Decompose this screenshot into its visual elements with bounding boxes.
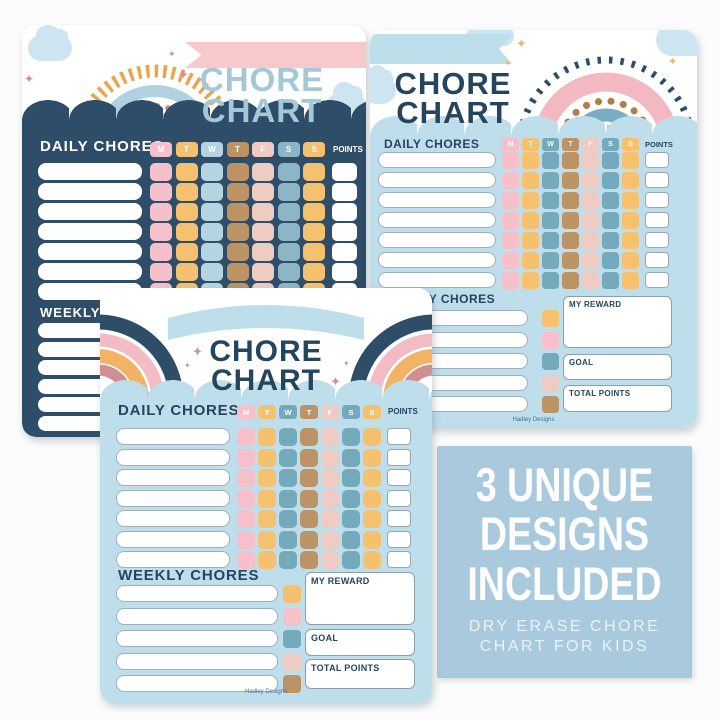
day-cell[interactable] xyxy=(237,428,255,446)
day-cell[interactable] xyxy=(176,263,198,281)
day-header: T xyxy=(227,142,249,157)
day-cell[interactable] xyxy=(303,163,325,181)
table-row xyxy=(116,608,301,626)
points-cell[interactable] xyxy=(645,252,669,268)
sparkle-icon: ✦ xyxy=(168,51,176,60)
day-cell[interactable] xyxy=(278,183,300,201)
day-cell[interactable] xyxy=(278,163,300,181)
table-row xyxy=(378,212,669,229)
day-cell[interactable] xyxy=(278,203,300,221)
total-points-box[interactable]: TOTAL POINTS xyxy=(305,659,415,689)
chore-name-field[interactable] xyxy=(116,531,230,548)
promo-headline-line1: 3 UNIQUE xyxy=(463,460,667,509)
chart-title: CHORE CHART xyxy=(372,70,534,127)
day-cell[interactable] xyxy=(622,212,639,229)
points-label: POINTS xyxy=(388,407,418,416)
day-cell[interactable] xyxy=(522,252,539,269)
product-image: ✦ ✦ ✦ CHORE CHART DAILY CHORES MTWTFSS P… xyxy=(0,0,720,720)
day-cell[interactable] xyxy=(502,192,519,209)
table-row xyxy=(378,252,669,269)
chore-name-field[interactable] xyxy=(116,630,278,647)
day-cell[interactable] xyxy=(176,183,198,201)
day-cell[interactable] xyxy=(502,212,519,229)
day-cell[interactable] xyxy=(582,252,599,269)
my-reward-box[interactable]: MY REWARD xyxy=(563,296,672,348)
day-cell[interactable] xyxy=(562,192,579,209)
chore-name-field[interactable] xyxy=(38,183,142,200)
points-cell[interactable] xyxy=(645,152,669,168)
day-cell[interactable] xyxy=(252,163,274,181)
day-cell[interactable] xyxy=(303,263,325,281)
day-cell[interactable] xyxy=(363,490,381,508)
chart-title-line2: CHART xyxy=(172,96,352,127)
day-cell[interactable] xyxy=(201,163,223,181)
day-cell[interactable] xyxy=(562,272,579,289)
day-header: S xyxy=(278,142,300,157)
points-cell[interactable] xyxy=(387,449,411,466)
day-header: F xyxy=(321,405,339,419)
week-color-square xyxy=(542,375,559,392)
day-cell[interactable] xyxy=(278,263,300,281)
day-cell[interactable] xyxy=(300,531,318,549)
day-cell[interactable] xyxy=(562,212,579,229)
chore-name-field[interactable] xyxy=(378,172,496,188)
day-cell[interactable] xyxy=(522,272,539,289)
day-cell[interactable] xyxy=(321,490,339,508)
daily-chores-label: DAILY CHORES xyxy=(40,138,164,155)
my-reward-label: MY REWARD xyxy=(306,573,414,589)
day-cell[interactable] xyxy=(522,192,539,209)
chore-name-field[interactable] xyxy=(116,428,230,445)
chore-name-field[interactable] xyxy=(378,252,496,268)
points-cell[interactable] xyxy=(387,469,411,486)
points-cell[interactable] xyxy=(387,531,411,548)
day-cell[interactable] xyxy=(237,449,255,467)
table-row xyxy=(116,428,411,446)
week-color-square xyxy=(542,310,559,327)
day-cell[interactable] xyxy=(201,203,223,221)
day-cell[interactable] xyxy=(227,203,249,221)
points-label: POINTS xyxy=(333,145,363,154)
day-header: W xyxy=(542,138,559,151)
chore-name-field[interactable] xyxy=(378,272,496,288)
day-header: F xyxy=(582,138,599,151)
day-cell[interactable] xyxy=(300,490,318,508)
points-cell[interactable] xyxy=(387,428,411,445)
day-cell[interactable] xyxy=(237,469,255,487)
day-cell[interactable] xyxy=(258,428,276,446)
sparkle-icon: ✦ xyxy=(516,38,527,51)
sparkle-icon: ✦ xyxy=(24,73,34,85)
day-cell[interactable] xyxy=(252,243,274,261)
goal-label: GOAL xyxy=(564,355,671,370)
day-cell[interactable] xyxy=(278,243,300,261)
sparkle-icon: ✦ xyxy=(668,56,677,67)
day-cell[interactable] xyxy=(562,252,579,269)
day-cell[interactable] xyxy=(252,223,274,241)
day-cell[interactable] xyxy=(279,469,297,487)
day-cell[interactable] xyxy=(602,212,619,229)
day-cell[interactable] xyxy=(278,223,300,241)
table-row xyxy=(378,172,669,189)
week-color-square xyxy=(283,653,301,671)
week-color-square xyxy=(542,396,559,413)
daily-chores-table xyxy=(378,152,669,292)
day-cell[interactable] xyxy=(363,428,381,446)
total-points-label: TOTAL POINTS xyxy=(564,386,671,401)
chore-name-field[interactable] xyxy=(116,585,278,602)
chart-title: CHORE CHART xyxy=(100,338,432,395)
points-cell[interactable] xyxy=(332,203,357,221)
day-cell[interactable] xyxy=(342,510,360,528)
table-row xyxy=(38,243,357,261)
daily-chores-table xyxy=(116,428,411,572)
table-row xyxy=(38,183,357,201)
day-cell[interactable] xyxy=(150,203,172,221)
day-cell[interactable] xyxy=(582,232,599,249)
week-color-square xyxy=(542,332,559,349)
points-cell[interactable] xyxy=(332,243,357,261)
day-cell[interactable] xyxy=(252,183,274,201)
day-cell[interactable] xyxy=(176,243,198,261)
day-cell[interactable] xyxy=(363,531,381,549)
day-cell[interactable] xyxy=(279,551,297,569)
day-cell[interactable] xyxy=(150,183,172,201)
day-cell[interactable] xyxy=(602,272,619,289)
day-cell[interactable] xyxy=(562,232,579,249)
daily-chores-table xyxy=(38,163,357,303)
day-cell[interactable] xyxy=(279,510,297,528)
week-color-square xyxy=(542,353,559,370)
day-header: W xyxy=(201,142,223,157)
promo-box: 3 UNIQUE DESIGNS INCLUDED DRY ERASE CHOR… xyxy=(437,446,692,678)
day-cell[interactable] xyxy=(176,223,198,241)
table-row xyxy=(38,163,357,181)
day-cell[interactable] xyxy=(522,172,539,189)
table-row xyxy=(116,630,301,648)
day-cell[interactable] xyxy=(502,172,519,189)
chore-name-field[interactable] xyxy=(116,510,230,527)
table-row xyxy=(378,232,669,249)
chart-title-line2: CHART xyxy=(372,99,534,128)
day-cell[interactable] xyxy=(227,223,249,241)
points-label: POINTS xyxy=(645,140,673,149)
daily-chores-label: DAILY CHORES xyxy=(384,137,479,151)
day-cell[interactable] xyxy=(502,152,519,169)
points-cell[interactable] xyxy=(645,192,669,208)
day-header-row: MTWTFSS xyxy=(237,405,384,419)
chore-name-field[interactable] xyxy=(116,490,230,507)
week-color-square xyxy=(283,630,301,648)
day-cell[interactable] xyxy=(321,449,339,467)
day-cell[interactable] xyxy=(252,203,274,221)
day-cell[interactable] xyxy=(342,490,360,508)
promo-headline: 3 UNIQUE DESIGNS INCLUDED xyxy=(463,460,667,608)
day-header: T xyxy=(176,142,198,157)
chore-name-field[interactable] xyxy=(116,608,278,625)
day-cell[interactable] xyxy=(542,212,559,229)
chart-title-line1: CHORE xyxy=(100,338,432,367)
promo-subheadline: DRY ERASE CHORE CHART FOR KIDS xyxy=(437,617,692,657)
day-header: M xyxy=(502,138,519,151)
day-cell[interactable] xyxy=(502,252,519,269)
day-cell[interactable] xyxy=(279,449,297,467)
day-cell[interactable] xyxy=(150,163,172,181)
day-cell[interactable] xyxy=(582,192,599,209)
day-cell[interactable] xyxy=(300,510,318,528)
day-cell[interactable] xyxy=(321,469,339,487)
day-cell[interactable] xyxy=(582,272,599,289)
table-row xyxy=(378,152,669,169)
day-cell[interactable] xyxy=(342,449,360,467)
day-cell[interactable] xyxy=(542,272,559,289)
day-cell[interactable] xyxy=(363,449,381,467)
points-cell[interactable] xyxy=(332,223,357,241)
day-cell[interactable] xyxy=(150,263,172,281)
day-header: W xyxy=(279,405,297,419)
weekly-chores-label: WEEKLY CHORES xyxy=(118,567,259,584)
day-cell[interactable] xyxy=(227,263,249,281)
day-cell[interactable] xyxy=(502,272,519,289)
day-cell[interactable] xyxy=(342,551,360,569)
day-header: S xyxy=(342,405,360,419)
week-color-square xyxy=(283,585,301,603)
day-cell[interactable] xyxy=(622,152,639,169)
points-cell[interactable] xyxy=(332,263,357,281)
promo-headline-line3: INCLUDED xyxy=(463,559,667,608)
day-cell[interactable] xyxy=(258,449,276,467)
chore-name-field[interactable] xyxy=(38,203,142,220)
total-points-label: TOTAL POINTS xyxy=(306,660,414,676)
chore-name-field[interactable] xyxy=(116,653,278,670)
points-cell[interactable] xyxy=(387,490,411,507)
day-cell[interactable] xyxy=(258,469,276,487)
day-cell[interactable] xyxy=(201,223,223,241)
chore-name-field[interactable] xyxy=(116,469,230,486)
day-cell[interactable] xyxy=(582,152,599,169)
chore-name-field[interactable] xyxy=(38,223,142,240)
points-cell[interactable] xyxy=(645,232,669,248)
daily-chores-label: DAILY CHORES xyxy=(118,402,239,419)
day-cell[interactable] xyxy=(150,243,172,261)
day-header: S xyxy=(303,142,325,157)
points-cell[interactable] xyxy=(645,212,669,228)
day-header: S xyxy=(622,138,639,151)
day-cell[interactable] xyxy=(363,469,381,487)
chore-name-field[interactable] xyxy=(38,243,142,260)
day-cell[interactable] xyxy=(582,212,599,229)
day-header: S xyxy=(363,405,381,419)
day-header: F xyxy=(252,142,274,157)
brand-text: Hadley Designs xyxy=(100,689,432,695)
goal-box[interactable]: GOAL xyxy=(305,629,415,656)
day-cell[interactable] xyxy=(602,152,619,169)
day-cell[interactable] xyxy=(342,531,360,549)
day-cell[interactable] xyxy=(300,551,318,569)
day-cell[interactable] xyxy=(279,490,297,508)
day-cell[interactable] xyxy=(321,428,339,446)
day-cell[interactable] xyxy=(582,172,599,189)
table-row xyxy=(38,263,357,281)
day-cell[interactable] xyxy=(303,183,325,201)
day-cell[interactable] xyxy=(321,510,339,528)
day-header: S xyxy=(602,138,619,151)
week-color-square xyxy=(283,608,301,626)
day-header: T xyxy=(522,138,539,151)
points-cell[interactable] xyxy=(332,183,357,201)
goal-box[interactable]: GOAL xyxy=(563,354,672,380)
day-cell[interactable] xyxy=(258,510,276,528)
day-header: M xyxy=(150,142,172,157)
table-row xyxy=(116,653,301,671)
table-row xyxy=(38,223,357,241)
chore-name-field[interactable] xyxy=(378,192,496,208)
day-cell[interactable] xyxy=(258,531,276,549)
day-cell[interactable] xyxy=(622,252,639,269)
table-row xyxy=(116,469,411,487)
chore-name-field[interactable] xyxy=(116,449,230,466)
day-cell[interactable] xyxy=(303,243,325,261)
day-cell[interactable] xyxy=(237,531,255,549)
promo-subheadline-line2: CHART FOR KIDS xyxy=(437,637,692,657)
day-cell[interactable] xyxy=(562,152,579,169)
day-cell[interactable] xyxy=(303,223,325,241)
chore-name-field[interactable] xyxy=(378,212,496,228)
day-cell[interactable] xyxy=(227,243,249,261)
chart-title-line2: CHART xyxy=(100,367,432,396)
promo-subheadline-line1: DRY ERASE CHORE xyxy=(437,617,692,637)
day-cell[interactable] xyxy=(176,163,198,181)
day-cell[interactable] xyxy=(363,510,381,528)
day-header: T xyxy=(300,405,318,419)
day-cell[interactable] xyxy=(542,192,559,209)
total-points-box[interactable]: TOTAL POINTS xyxy=(563,385,672,412)
day-header: T xyxy=(562,138,579,151)
day-cell[interactable] xyxy=(279,428,297,446)
day-cell[interactable] xyxy=(201,243,223,261)
table-row xyxy=(116,490,411,508)
day-cell[interactable] xyxy=(252,263,274,281)
points-cell[interactable] xyxy=(387,551,411,568)
table-row xyxy=(378,192,669,209)
table-row xyxy=(116,585,301,603)
table-row xyxy=(378,272,669,289)
weekly-chores-table xyxy=(116,585,301,698)
day-cell[interactable] xyxy=(300,449,318,467)
day-cell[interactable] xyxy=(622,232,639,249)
table-row xyxy=(116,531,411,549)
chart-title: CHORE CHART xyxy=(172,65,352,126)
my-reward-label: MY REWARD xyxy=(564,297,671,312)
day-cell[interactable] xyxy=(542,232,559,249)
points-cell[interactable] xyxy=(645,272,669,288)
day-cell[interactable] xyxy=(321,551,339,569)
day-cell[interactable] xyxy=(602,172,619,189)
day-cell[interactable] xyxy=(227,183,249,201)
chore-name-field[interactable] xyxy=(38,163,142,180)
day-cell[interactable] xyxy=(602,192,619,209)
day-cell[interactable] xyxy=(622,272,639,289)
day-cell[interactable] xyxy=(300,469,318,487)
day-cell[interactable] xyxy=(201,183,223,201)
day-header: T xyxy=(258,405,276,419)
day-cell[interactable] xyxy=(542,152,559,169)
chore-chart-design-3: ✦ ✦ ✦ ✦ CHORE CHART DAILY CHORES MTWTFSS… xyxy=(100,288,432,703)
chore-name-field[interactable] xyxy=(116,551,230,568)
day-cell[interactable] xyxy=(237,510,255,528)
chore-name-field[interactable] xyxy=(378,152,496,168)
day-cell[interactable] xyxy=(279,531,297,549)
ribbon-banner xyxy=(370,34,512,64)
day-cell[interactable] xyxy=(602,232,619,249)
points-cell[interactable] xyxy=(645,172,669,188)
chore-name-field[interactable] xyxy=(378,232,496,248)
my-reward-box[interactable]: MY REWARD xyxy=(305,572,415,625)
day-cell[interactable] xyxy=(363,551,381,569)
day-cell[interactable] xyxy=(602,252,619,269)
day-cell[interactable] xyxy=(300,428,318,446)
day-cell[interactable] xyxy=(502,232,519,249)
day-header-row: MTWTFSS xyxy=(502,138,642,151)
day-cell[interactable] xyxy=(342,428,360,446)
day-cell[interactable] xyxy=(562,172,579,189)
day-cell[interactable] xyxy=(622,172,639,189)
day-cell[interactable] xyxy=(176,203,198,221)
day-cell[interactable] xyxy=(258,490,276,508)
chore-name-field[interactable] xyxy=(38,263,142,280)
day-cell[interactable] xyxy=(321,531,339,549)
day-header: M xyxy=(237,405,255,419)
day-cell[interactable] xyxy=(542,252,559,269)
day-cell[interactable] xyxy=(227,163,249,181)
day-cell[interactable] xyxy=(622,192,639,209)
day-cell[interactable] xyxy=(522,232,539,249)
day-cell[interactable] xyxy=(237,490,255,508)
day-cell[interactable] xyxy=(342,469,360,487)
table-row xyxy=(38,203,357,221)
day-cell[interactable] xyxy=(542,172,559,189)
day-header-row: MTWTFSS xyxy=(150,142,329,157)
promo-headline-line2: DESIGNS xyxy=(463,509,667,558)
day-cell[interactable] xyxy=(522,212,539,229)
day-cell[interactable] xyxy=(522,152,539,169)
day-cell[interactable] xyxy=(201,263,223,281)
points-cell[interactable] xyxy=(387,510,411,527)
day-cell[interactable] xyxy=(303,203,325,221)
goal-label: GOAL xyxy=(306,630,414,646)
table-row xyxy=(116,510,411,528)
table-row xyxy=(116,449,411,467)
day-cell[interactable] xyxy=(258,551,276,569)
day-cell[interactable] xyxy=(150,223,172,241)
points-cell[interactable] xyxy=(332,163,357,181)
